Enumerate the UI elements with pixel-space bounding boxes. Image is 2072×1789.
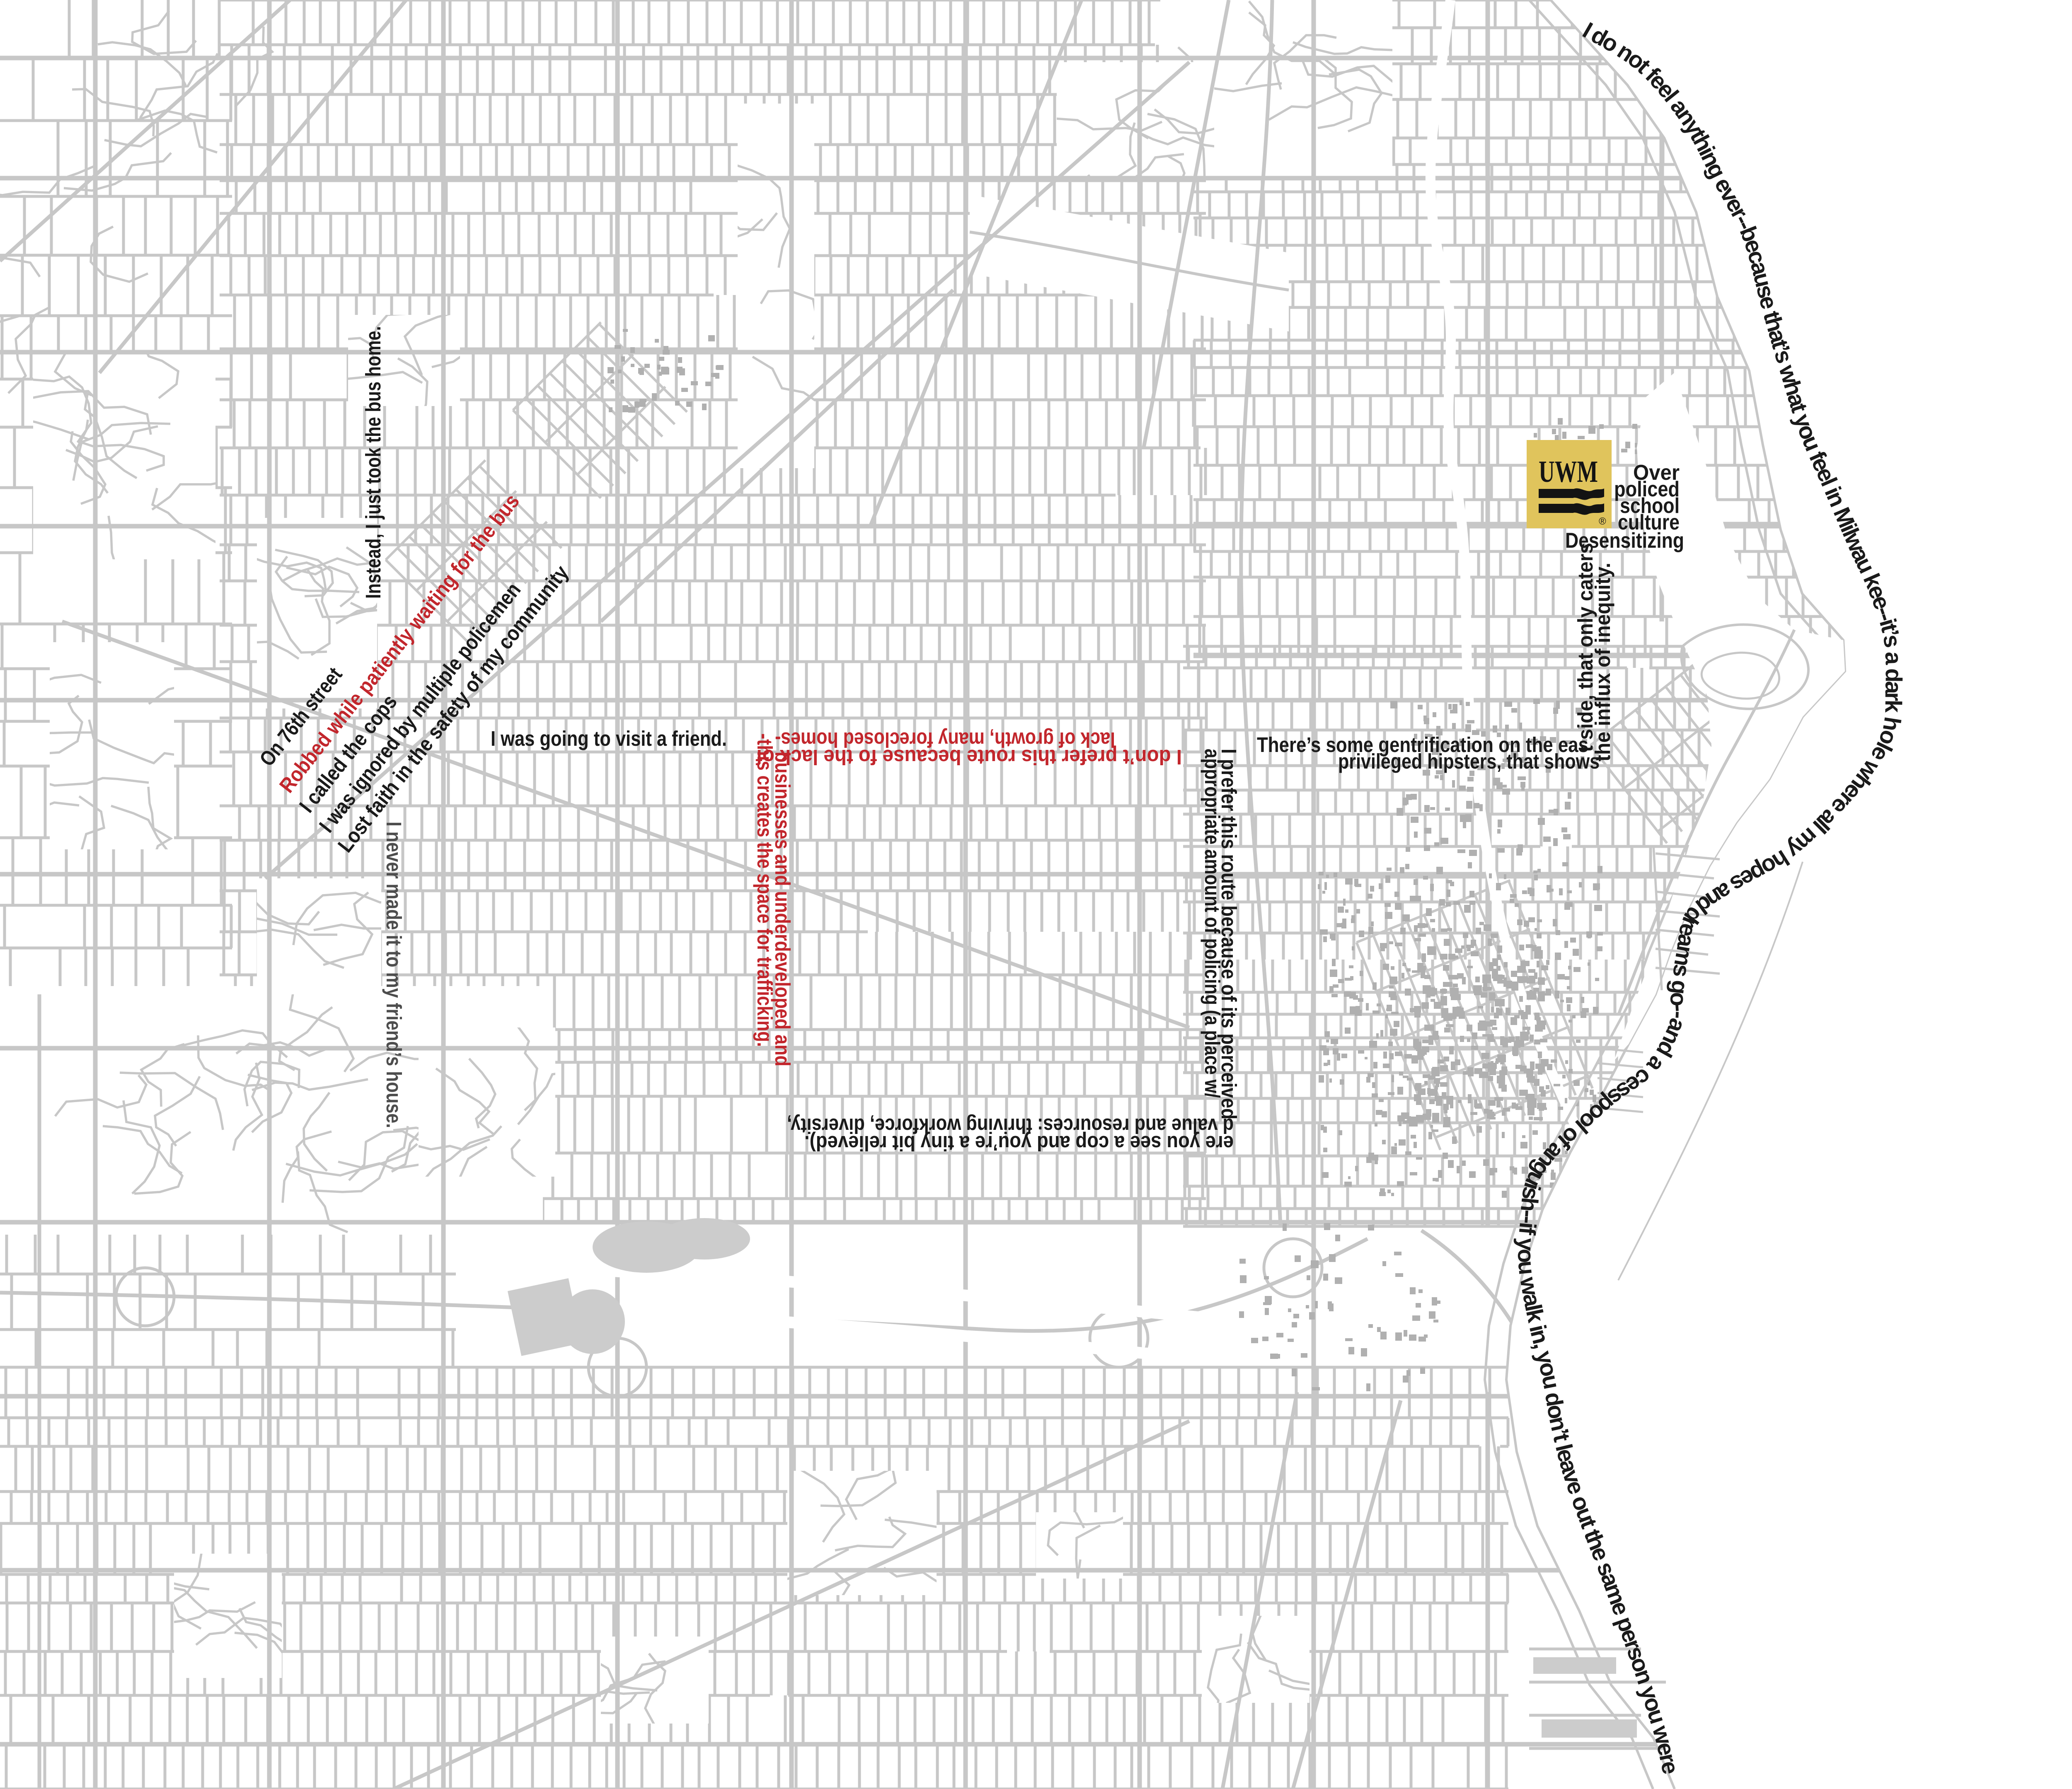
svg-text:Instead, I just took the bus h: Instead, I just took the bus home. [361,326,385,599]
svg-text:appropriate amount of policing: appropriate amount of policing (a place … [1201,749,1224,1098]
svg-text:Desensitizing: Desensitizing [1565,529,1684,553]
svg-text:-this creates the space for tr: -this creates the space for trafficking. [753,733,777,1047]
svg-text:I don’t prefer this route beca: I don’t prefer this route because fo the… [755,745,1182,769]
svg-text:UWM: UWM [1539,455,1598,489]
svg-text:I was going to visit a friend.: I was going to visit a friend. [491,727,727,750]
svg-text:ere you see a cop and you’re a: ere you see a cop and you’re a tiny bit … [804,1131,1234,1155]
svg-text:®: ® [1599,516,1606,527]
svg-text:the influx of inequity.: the influx of inequity. [1591,563,1615,762]
svg-text:I never made it to my friend’s: I never made it to my friend’s house. [382,822,406,1128]
svg-text:privileged hipsters, that show: privileged hipsters, that shows [1338,749,1600,773]
